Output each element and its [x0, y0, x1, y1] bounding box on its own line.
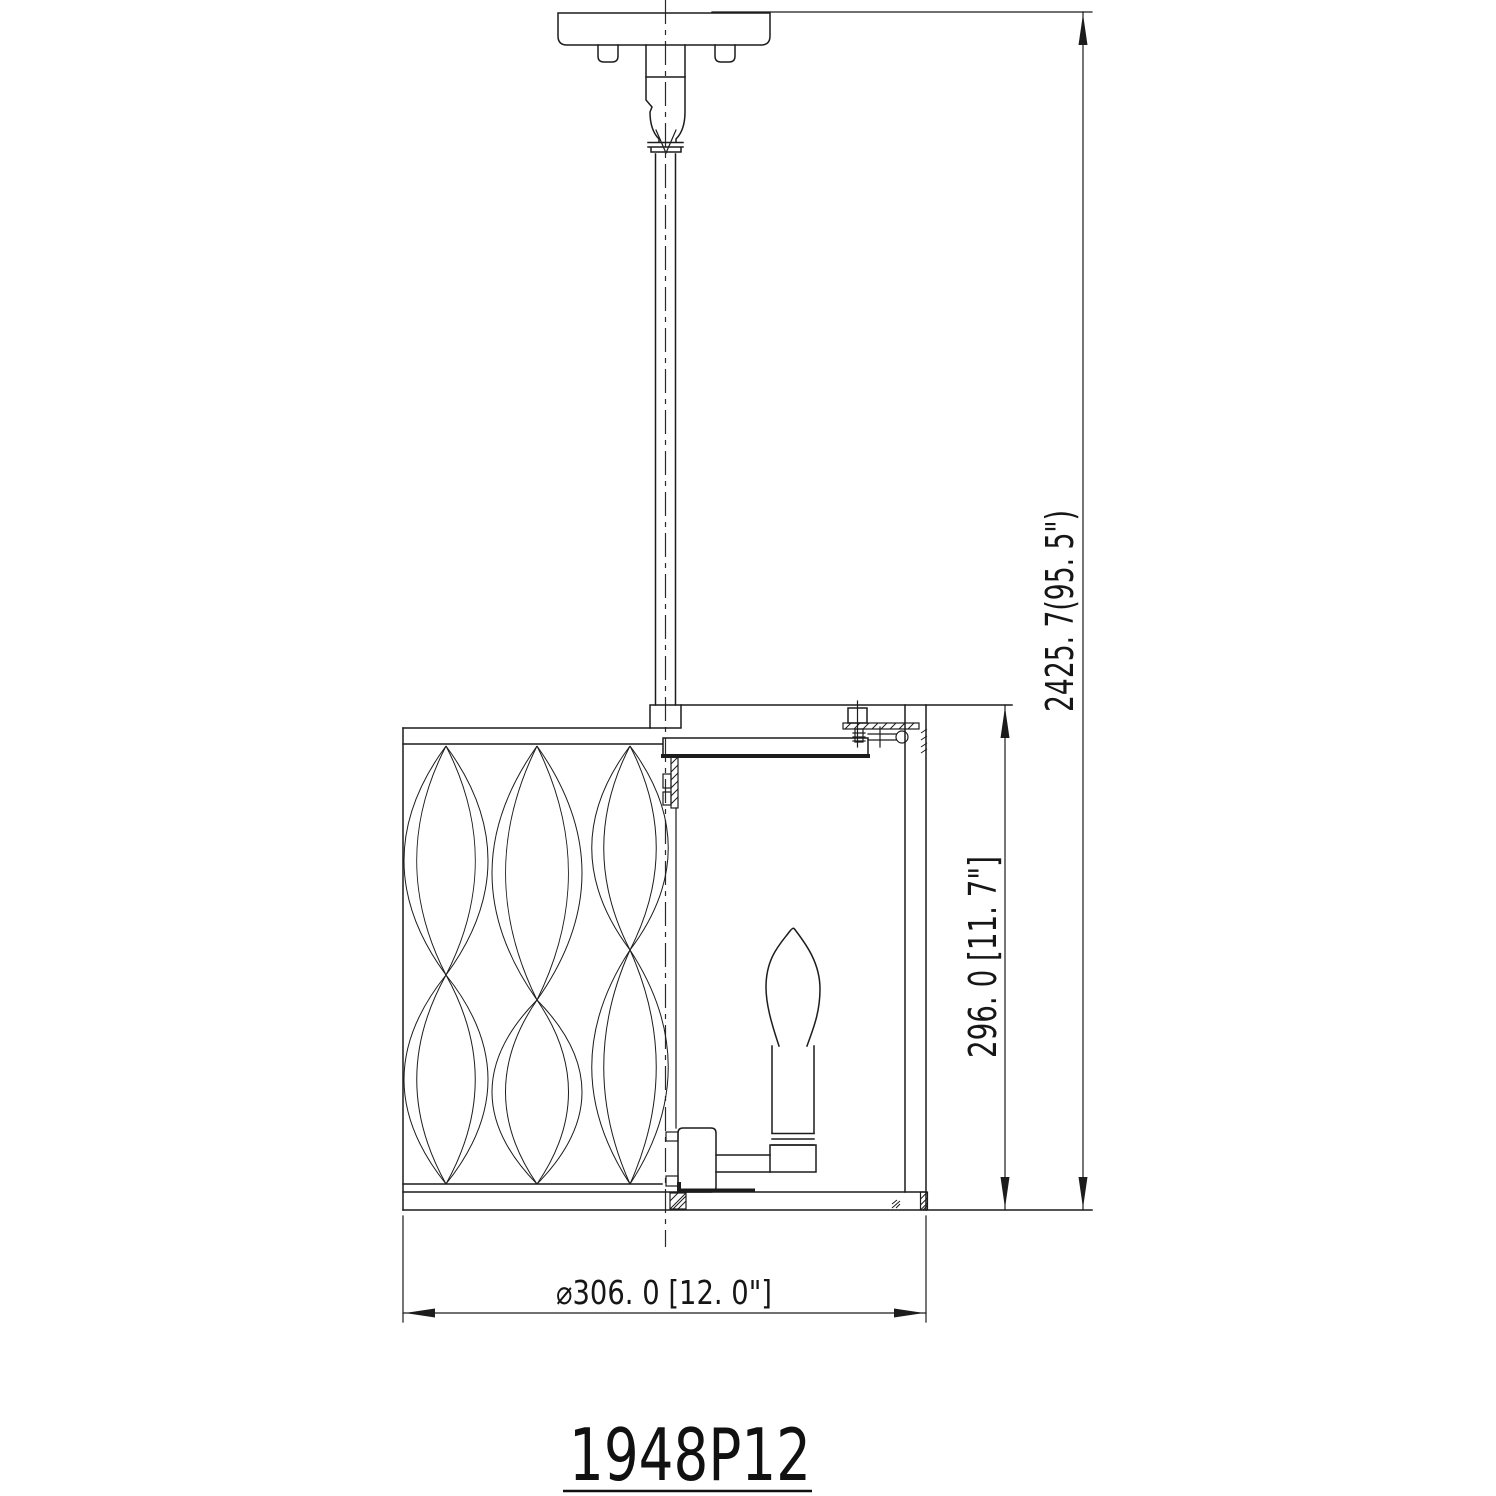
socket-rings — [772, 1134, 814, 1146]
diameter-label: ⌀306. 0 [12. 0"] — [556, 1273, 772, 1312]
wave-curve — [404, 746, 488, 1184]
wave-curve — [506, 746, 569, 1184]
center-hub-hatch — [670, 1193, 686, 1209]
wave-curve — [417, 746, 476, 1184]
model-number-label: 1948P12 — [569, 1413, 811, 1496]
socket-arm — [716, 1155, 770, 1172]
bottom-plate-hatches — [670, 1192, 928, 1210]
socket-hub — [678, 1128, 716, 1192]
canopy-screw-right — [715, 45, 735, 62]
shade-wave-pattern — [404, 746, 668, 1184]
wave-curve — [592, 746, 669, 1184]
wave-curve — [492, 746, 582, 1184]
thumb-screw-shank — [853, 729, 865, 742]
overall-height-label: 2425. 7(95. 5") — [1038, 510, 1082, 712]
arrow-right-icon — [894, 1309, 924, 1318]
candle-bulb — [766, 928, 820, 1046]
plate-hatch-speck — [892, 1200, 900, 1208]
pendant-light-technical-drawing: 2425. 7(95. 5") 296. 0 [11. 7"] ⌀306. 0 … — [0, 0, 1496, 1496]
dim-overall-height: 2425. 7(95. 5") — [712, 12, 1092, 1210]
socket-cluster — [666, 928, 820, 1192]
side-screw-assembly — [868, 727, 927, 753]
body-height-label: 296. 0 [11. 7"] — [961, 856, 1005, 1058]
socket-base — [770, 1145, 816, 1172]
drawing-canvas: 2425. 7(95. 5") 296. 0 [11. 7"] ⌀306. 0 … — [0, 0, 1496, 1496]
canopy-screw-left — [598, 45, 618, 62]
wave-curve — [506, 746, 569, 1184]
dim-diameter: ⌀306. 0 [12. 0"] — [403, 1216, 926, 1322]
canopy-plate — [558, 13, 770, 45]
model-number: 1948P12 — [563, 1413, 812, 1496]
wave-curve — [592, 746, 669, 1184]
candle-socket-body — [772, 1046, 814, 1133]
arrow-up-icon — [1001, 707, 1010, 738]
stem-bell-right — [676, 77, 685, 142]
side-screw-head — [896, 731, 908, 743]
wave-curve — [492, 746, 582, 1184]
nipple-hatch — [671, 757, 678, 804]
arrow-up-icon — [1079, 14, 1088, 45]
wave-curve — [604, 746, 657, 1184]
wave-curve — [417, 746, 476, 1184]
lock-nut-lower — [663, 792, 671, 805]
wave-curve — [404, 746, 488, 1184]
hub-tab-lower — [666, 1176, 678, 1186]
wave-curve — [604, 746, 657, 1184]
lock-nut-upper — [663, 774, 671, 788]
side-screw-shaft — [868, 727, 896, 747]
arrow-down-icon — [1079, 1177, 1088, 1208]
hub-tab-upper — [666, 1132, 678, 1141]
ceiling-canopy — [558, 13, 770, 62]
arrow-left-icon — [405, 1309, 435, 1318]
arrow-down-icon — [1001, 1177, 1010, 1208]
top-mounting-plate — [663, 738, 868, 757]
dim-body-height: 296. 0 [11. 7"] — [961, 705, 1010, 1210]
